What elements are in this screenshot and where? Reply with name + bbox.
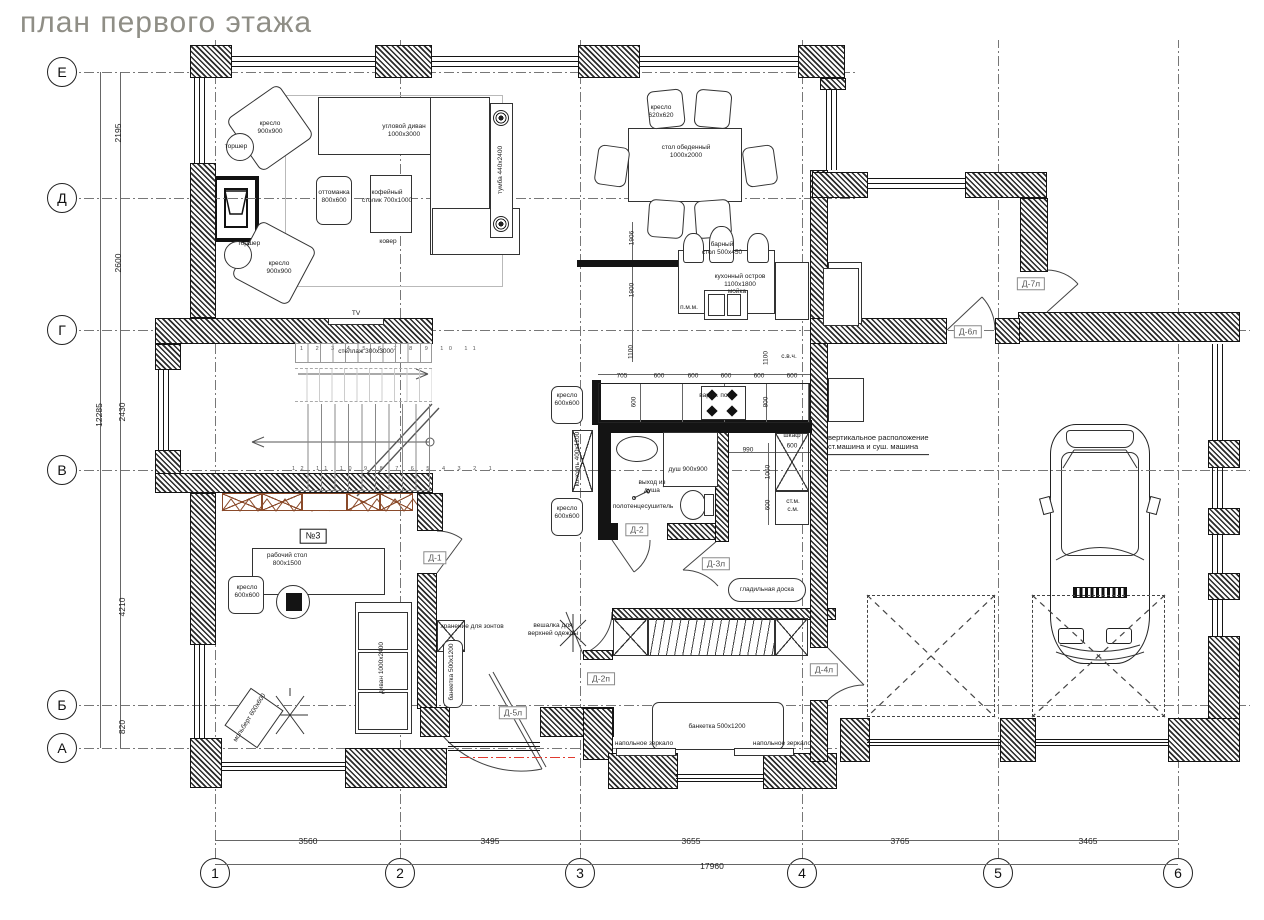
understair-cabinet <box>347 493 380 511</box>
wall-segment <box>420 707 450 737</box>
wall-segment <box>608 753 678 789</box>
console-storage <box>572 430 593 492</box>
wall-segment <box>155 318 433 344</box>
dining-chair <box>593 144 630 188</box>
door-tag: Д-3л <box>702 557 730 570</box>
wall-segment <box>1208 440 1240 468</box>
wardrobe-section <box>775 618 808 656</box>
tv <box>328 318 384 325</box>
dimension-label: 600 <box>631 397 638 408</box>
coat-hanger-icon <box>560 614 586 652</box>
window <box>1212 468 1223 508</box>
sofa-cushion <box>358 652 408 690</box>
dimension-label: 705 <box>617 373 628 380</box>
dimension-label: 800 <box>763 397 770 408</box>
speaker <box>493 110 509 126</box>
boiler-box <box>828 378 864 422</box>
armchair <box>551 498 583 536</box>
axis-bubble-col: 3 <box>565 858 595 888</box>
wall-partition <box>577 260 679 267</box>
dining-chair <box>647 199 686 239</box>
door-tag: Д-2п <box>587 672 615 685</box>
wall-segment <box>1208 636 1240 722</box>
door-tag: Д-5л <box>499 706 527 719</box>
bench <box>443 640 463 708</box>
axis-bubble-row: Б <box>47 690 77 720</box>
fireplace-firebox <box>224 188 248 228</box>
wall-segment <box>417 573 437 709</box>
wardrobe-section <box>613 618 648 656</box>
dimension-label: 3495 <box>481 836 500 846</box>
sink-basin <box>708 294 725 316</box>
entry-closet <box>823 268 859 326</box>
dimension-label: 1100 <box>628 345 635 359</box>
axis-bubble-col: 2 <box>385 858 415 888</box>
bar-jar <box>747 233 769 263</box>
sink-basin <box>727 294 741 316</box>
dimension-label: 3765 <box>891 836 910 846</box>
wall-segment <box>798 45 845 78</box>
wall-segment <box>1020 198 1048 272</box>
bench <box>652 702 784 750</box>
bar-jar <box>709 226 734 263</box>
stair-rail <box>295 368 432 402</box>
axis-bubble-row: В <box>47 455 77 485</box>
axis-bubble-row: А <box>47 733 77 763</box>
dimension-label: 600 <box>654 373 665 380</box>
ironing-board <box>728 578 806 602</box>
dimension-line <box>598 374 810 375</box>
dimension-label: 1900 <box>629 283 636 297</box>
parking-zone <box>1032 595 1165 717</box>
wall-segment <box>578 45 640 78</box>
dimension-label: 17960 <box>700 861 724 871</box>
window <box>158 370 169 450</box>
door-tag: Д-6л <box>954 325 982 338</box>
dimension-label: 3560 <box>299 836 318 846</box>
room-label: полотенцесушитель <box>613 503 674 511</box>
door-tag: Д-2 <box>625 523 648 536</box>
page-title: план первого этажа <box>20 6 312 40</box>
axis-bubble-col: 5 <box>983 858 1013 888</box>
dimension-label: 600 <box>721 373 732 380</box>
wall-partition <box>598 523 618 540</box>
wall-partition <box>598 432 611 530</box>
window <box>448 742 540 751</box>
sofa-cushion <box>358 692 408 730</box>
door-tag: Д-1 <box>423 551 446 564</box>
wall-segment <box>583 650 613 660</box>
floor-lamp <box>226 133 254 161</box>
wall-segment <box>1018 312 1240 342</box>
window <box>222 762 345 771</box>
shelf-row <box>295 343 432 363</box>
wall-segment <box>190 493 216 645</box>
axis-bubble-col: 6 <box>1163 858 1193 888</box>
room-label: выход из душа <box>639 479 666 495</box>
hob <box>701 386 746 420</box>
wall-segment <box>810 700 828 762</box>
towel-dryer-icon <box>633 490 650 500</box>
room-number: №3 <box>300 529 327 544</box>
bar-jar <box>683 233 704 263</box>
window <box>194 645 205 738</box>
dining-chair <box>741 144 778 188</box>
wall-segment <box>995 318 1020 344</box>
dimension-label: 2600 <box>113 254 123 273</box>
understair-cabinet <box>380 493 413 511</box>
washbasin <box>616 436 658 462</box>
dimension-line <box>215 864 1178 865</box>
dimension-label: 1100 <box>763 351 770 365</box>
entry-axis-red <box>460 757 575 758</box>
sofa-cushion <box>358 612 408 650</box>
toilet-tank <box>704 494 714 516</box>
window <box>1035 739 1168 746</box>
axis-bubble-col: 1 <box>200 858 230 888</box>
dimension-label: 3655 <box>682 836 701 846</box>
easel-canvas <box>224 688 283 749</box>
wall-segment <box>375 45 432 78</box>
laundry-stack <box>775 491 809 525</box>
wall-segment <box>840 718 870 762</box>
axis-line-row <box>48 72 855 73</box>
dimension-label: 1906 <box>629 231 636 245</box>
understair-cabinet <box>262 493 302 511</box>
wall-segment <box>1208 508 1240 535</box>
floor-lamp <box>224 241 252 269</box>
dimension-label: 2430 <box>117 403 127 422</box>
car-rear-window <box>1066 430 1134 448</box>
window <box>232 56 375 67</box>
dimension-label: 2195 <box>113 124 123 143</box>
dining-table <box>628 128 742 202</box>
axis-line-col <box>998 40 999 858</box>
wall-segment <box>155 450 181 475</box>
shower <box>663 432 718 487</box>
desk-chair-seat <box>286 593 302 611</box>
dimension-label: 820 <box>117 720 127 734</box>
wall-segment <box>155 344 181 370</box>
floor-mirror <box>616 748 676 756</box>
wall-segment <box>1000 718 1036 762</box>
window <box>1212 600 1223 636</box>
understair-cabinet <box>302 493 347 511</box>
wall-segment <box>190 45 232 78</box>
fridge <box>775 262 809 320</box>
dimension-line <box>768 443 769 525</box>
wall-segment <box>190 163 216 318</box>
armchair <box>551 386 583 424</box>
axis-line-row <box>48 470 1250 471</box>
ottoman <box>316 176 352 225</box>
window <box>867 739 1000 746</box>
axis-bubble-row: Д <box>47 183 77 213</box>
dimension-label: 600 <box>787 443 798 450</box>
room-label: вешалка для верхней одежды <box>528 622 578 638</box>
dimension-label: 600 <box>787 373 798 380</box>
axis-bubble-row: Г <box>47 315 77 345</box>
wall-segment <box>190 738 222 788</box>
dimension-label: 600 <box>688 373 699 380</box>
room-label: TV <box>352 310 360 318</box>
floor-plan: план первого этажа <box>0 0 1264 920</box>
dimension-label: 600 <box>765 500 772 511</box>
room-label: вертикальное расположение ст.машина и су… <box>828 433 929 455</box>
wall-segment <box>1168 718 1240 762</box>
wall-segment <box>820 78 846 90</box>
car-roof <box>1061 452 1139 556</box>
dimension-label: 1060 <box>765 465 772 479</box>
dimension-label: 600 <box>754 373 765 380</box>
wall-segment <box>810 170 828 648</box>
dining-chair <box>646 88 686 130</box>
axis-bubble-row: Е <box>47 57 77 87</box>
wall-segment <box>812 172 868 198</box>
parking-zone <box>867 595 995 717</box>
desk <box>252 548 385 595</box>
wall-segment <box>1208 573 1240 600</box>
dimension-label: 4210 <box>117 598 127 617</box>
floor-mirror <box>734 748 794 756</box>
dimension-label: 990 <box>743 447 754 454</box>
understair-cabinet <box>222 493 262 511</box>
stair-treads <box>295 404 432 491</box>
wall-segment <box>417 493 443 531</box>
wardrobe-hanging <box>648 618 775 656</box>
room-label: с.в.ч. <box>781 353 797 361</box>
window <box>1212 344 1223 440</box>
dimension-label: 3465 <box>1079 836 1098 846</box>
speaker <box>493 216 509 232</box>
wall-segment <box>965 172 1047 198</box>
axis-bubble-col: 4 <box>787 858 817 888</box>
window <box>432 56 578 67</box>
toilet <box>680 490 706 520</box>
dimension-label: 12285 <box>94 403 104 427</box>
window <box>867 178 965 189</box>
window <box>194 78 205 163</box>
window <box>1212 535 1223 573</box>
armchair <box>228 576 264 614</box>
window <box>640 56 798 67</box>
dining-chair <box>693 89 732 130</box>
door-tag: Д-4л <box>810 663 838 676</box>
wall-segment <box>667 523 719 540</box>
wall-segment <box>345 748 447 788</box>
door-tag: Д-7л <box>1017 277 1045 290</box>
window <box>676 774 763 782</box>
coffee-table <box>370 175 412 233</box>
window <box>826 90 837 170</box>
